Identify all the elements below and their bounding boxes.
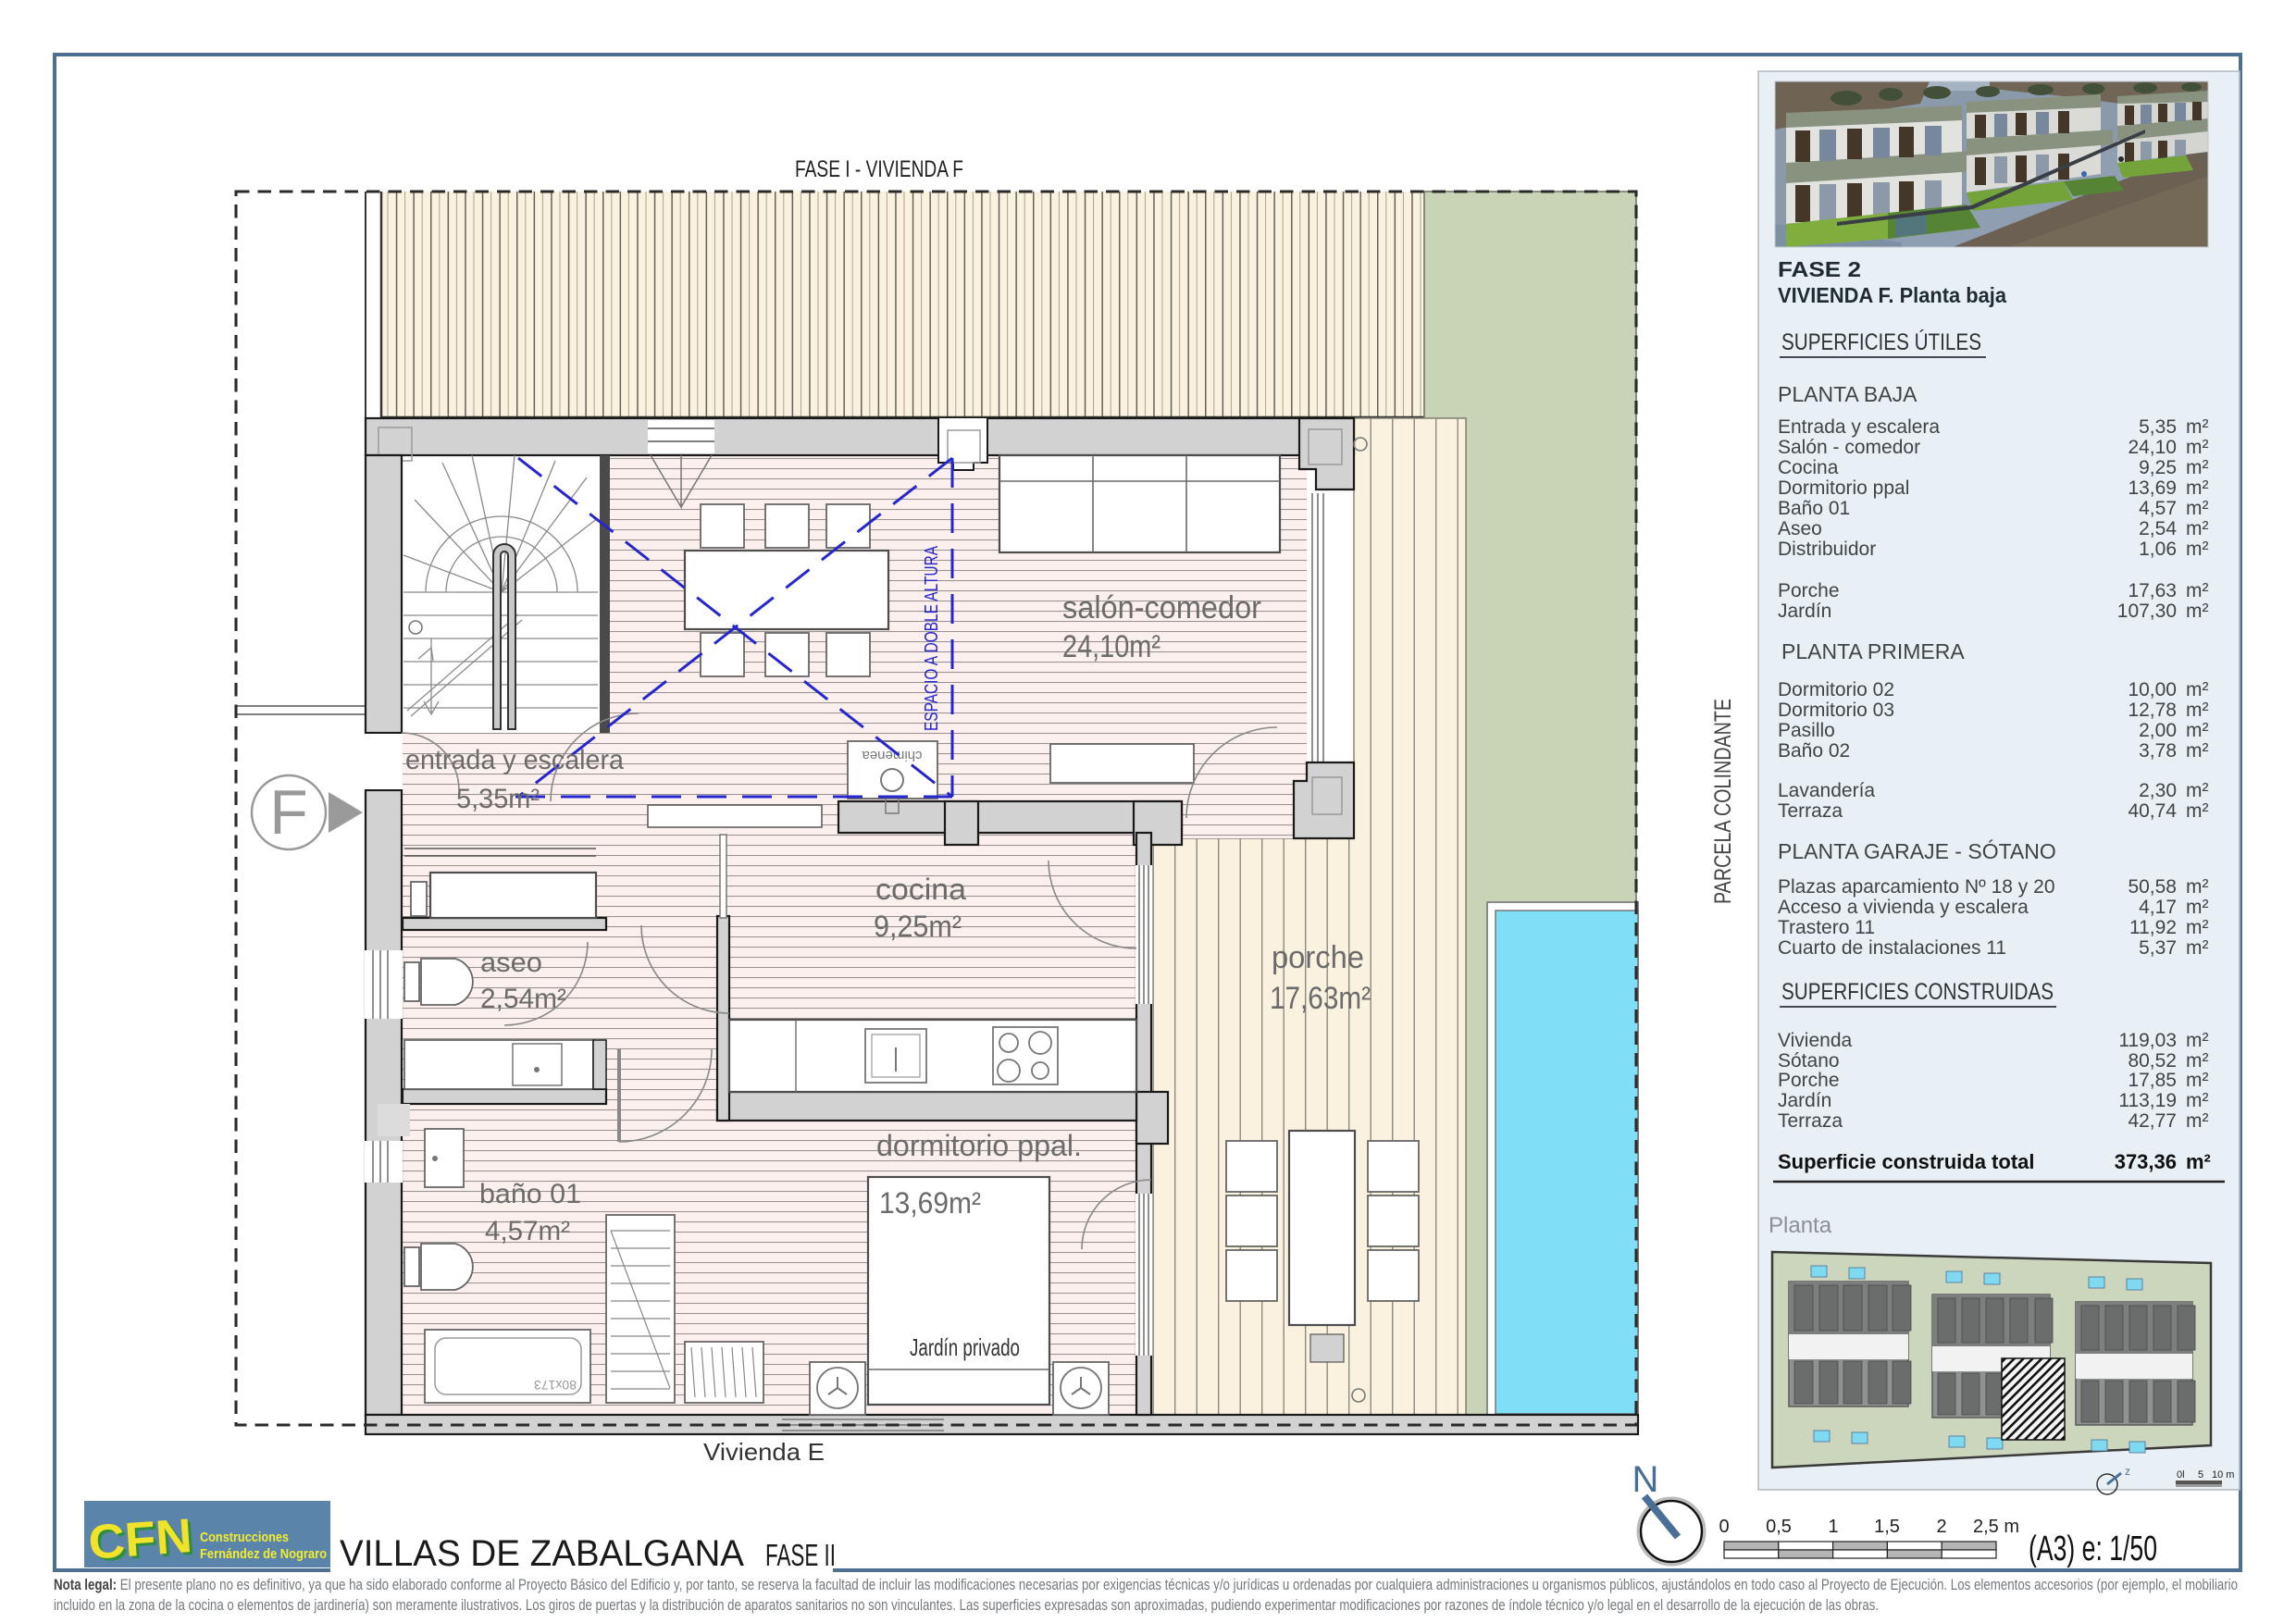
svg-text:1,5: 1,5 — [1874, 1517, 1900, 1537]
svg-text:40,74: 40,74 — [2128, 800, 2177, 822]
svg-text:2,5 m: 2,5 m — [1973, 1517, 2019, 1537]
svg-text:m²: m² — [2186, 917, 2209, 938]
svg-text:Plazas aparcamiento Nº 18 y 20: Plazas aparcamiento Nº 18 y 20 — [1778, 876, 2055, 898]
svg-text:9,25: 9,25 — [2139, 457, 2177, 478]
svg-text:0l: 0l — [2177, 1469, 2185, 1481]
svg-text:107,30: 107,30 — [2117, 601, 2177, 622]
svg-text:m²: m² — [2186, 580, 2209, 601]
svg-text:Cuarto de instalaciones 11: Cuarto de instalaciones 11 — [1778, 937, 2006, 959]
svg-text:12,78: 12,78 — [2128, 700, 2177, 721]
svg-text:9,25m²: 9,25m² — [874, 910, 962, 943]
svg-text:Construcciones: Construcciones — [200, 1530, 289, 1545]
svg-text:z: z — [2125, 1465, 2130, 1478]
svg-text:3,78: 3,78 — [2139, 740, 2177, 762]
svg-text:m²: m² — [2186, 1070, 2209, 1091]
svg-text:Terraza: Terraza — [1778, 800, 1843, 822]
svg-text:1: 1 — [1828, 1517, 1838, 1537]
svg-text:Dormitorio 02: Dormitorio 02 — [1778, 679, 1894, 700]
svg-text:Jardín privado: Jardín privado — [910, 1333, 1020, 1361]
svg-text:m²: m² — [2186, 897, 2209, 918]
svg-text:373,36: 373,36 — [2115, 1150, 2177, 1173]
svg-text:Dormitorio ppal: Dormitorio ppal — [1778, 477, 1909, 499]
svg-text:Porche: Porche — [1778, 1070, 1840, 1091]
svg-text:5,37: 5,37 — [2139, 937, 2177, 959]
svg-text:Dormitorio 03: Dormitorio 03 — [1778, 700, 1894, 721]
svg-text:Jardín: Jardín — [1778, 601, 1831, 622]
svg-text:80,52: 80,52 — [2128, 1050, 2177, 1072]
svg-text:24,10m²: 24,10m² — [1062, 629, 1160, 664]
svg-text:11,92: 11,92 — [2129, 917, 2177, 938]
svg-text:m²: m² — [2186, 539, 2209, 560]
svg-text:13,69m²: 13,69m² — [879, 1186, 981, 1220]
svg-text:m²: m² — [2186, 601, 2209, 622]
svg-text:Vivienda E: Vivienda E — [703, 1438, 825, 1466]
svg-text:F: F — [269, 777, 308, 848]
svg-text:Superficie construida total: Superficie construida total — [1778, 1150, 2035, 1173]
svg-text:Trastero 11: Trastero 11 — [1778, 917, 1875, 938]
svg-text:42,77: 42,77 — [2128, 1110, 2177, 1132]
svg-text:Vivienda: Vivienda — [1778, 1030, 1852, 1051]
svg-text:m²: m² — [2186, 416, 2209, 438]
svg-text:17,63: 17,63 — [2128, 580, 2177, 601]
svg-text:Sótano: Sótano — [1778, 1050, 1840, 1072]
svg-text:Pasillo: Pasillo — [1778, 720, 1835, 741]
svg-text:m²: m² — [2186, 518, 2209, 539]
svg-text:17,85: 17,85 — [2128, 1070, 2177, 1091]
svg-text:Planta: Planta — [1769, 1213, 1832, 1238]
svg-text:0: 0 — [1719, 1517, 1729, 1537]
svg-text:baño 01: baño 01 — [479, 1179, 581, 1209]
svg-text:Porche: Porche — [1778, 580, 1840, 601]
svg-text:2,54m²: 2,54m² — [480, 984, 566, 1014]
svg-text:m²: m² — [2186, 780, 2209, 801]
svg-text:4,17: 4,17 — [2139, 897, 2177, 918]
svg-text:m²: m² — [2186, 437, 2209, 458]
svg-text:SUPERFICIES ÚTILES: SUPERFICIES ÚTILES — [1781, 328, 1981, 355]
svg-text:N: N — [1632, 1459, 1659, 1500]
svg-text:m²: m² — [2186, 457, 2209, 478]
svg-text:salón-comedor: salón-comedor — [1062, 590, 1261, 626]
svg-text:17,63m²: 17,63m² — [1270, 981, 1371, 1016]
svg-text:Cocina: Cocina — [1778, 457, 1839, 478]
svg-text:PLANTA BAJA: PLANTA BAJA — [1778, 382, 1917, 406]
svg-text:m²: m² — [2186, 477, 2209, 499]
svg-text:2,30: 2,30 — [2139, 780, 2177, 801]
svg-text:5,35m²: 5,35m² — [456, 784, 540, 814]
svg-text:PLANTA PRIMERA: PLANTA PRIMERA — [1781, 639, 1965, 663]
svg-text:aseo: aseo — [480, 948, 542, 978]
svg-text:113,19: 113,19 — [2118, 1090, 2177, 1111]
svg-text:cocina: cocina — [875, 873, 966, 906]
svg-text:FASE II: FASE II — [765, 1538, 836, 1572]
svg-text:m²: m² — [2186, 876, 2209, 898]
svg-text:Salón - comedor: Salón - comedor — [1778, 437, 1920, 458]
svg-text:(A3) e: 1/50: (A3) e: 1/50 — [2029, 1530, 2157, 1568]
svg-text:m²: m² — [2186, 1110, 2209, 1132]
svg-text:1,06: 1,06 — [2139, 539, 2177, 560]
svg-text:2,00: 2,00 — [2139, 720, 2177, 741]
svg-text:incluido en la zona de la coci: incluido en la zona de la cocina o eleme… — [54, 1597, 1879, 1614]
svg-text:50,58: 50,58 — [2128, 876, 2177, 898]
svg-text:24,10: 24,10 — [2128, 437, 2177, 458]
svg-text:m²: m² — [2186, 720, 2209, 741]
svg-text:Baño 01: Baño 01 — [1778, 498, 1850, 519]
svg-text:Nota legal: El presente plano: Nota legal: El presente plano no es defi… — [54, 1577, 2238, 1593]
svg-text:Jardín: Jardín — [1778, 1090, 1831, 1111]
svg-text:SUPERFICIES CONSTRUIDAS: SUPERFICIES CONSTRUIDAS — [1781, 979, 2054, 1005]
svg-text:2: 2 — [1936, 1517, 1946, 1537]
svg-text:10,00: 10,00 — [2128, 679, 2177, 700]
svg-text:5,35: 5,35 — [2139, 416, 2177, 438]
svg-text:m²: m² — [2186, 498, 2209, 519]
svg-text:m²: m² — [2186, 1150, 2211, 1173]
svg-text:FASE 2: FASE 2 — [1778, 257, 1861, 281]
svg-text:Terraza: Terraza — [1778, 1110, 1843, 1132]
svg-text:ESPACIO A DOBLE ALTURA: ESPACIO A DOBLE ALTURA — [922, 545, 942, 731]
svg-text:m²: m² — [2186, 1030, 2209, 1051]
svg-text:VILLAS DE ZABALGANA: VILLAS DE ZABALGANA — [340, 1533, 744, 1574]
svg-text:119,03: 119,03 — [2118, 1030, 2177, 1051]
svg-text:PLANTA GARAJE - SÓTANO: PLANTA GARAJE - SÓTANO — [1778, 839, 2056, 863]
svg-text:Entrada y escalera: Entrada y escalera — [1778, 416, 1940, 438]
svg-text:80x173: 80x173 — [534, 1378, 577, 1393]
svg-text:Baño 02: Baño 02 — [1778, 740, 1850, 762]
svg-text:4,57: 4,57 — [2139, 498, 2177, 519]
svg-text:m²: m² — [2186, 740, 2209, 762]
svg-text:Acceso a vivienda y escalera: Acceso a vivienda y escalera — [1778, 897, 2029, 918]
svg-text:m²: m² — [2186, 937, 2209, 959]
svg-text:Aseo: Aseo — [1778, 518, 1822, 539]
svg-text:FASE I - VIVIENDA F: FASE I - VIVIENDA F — [795, 156, 963, 182]
svg-text:m²: m² — [2186, 679, 2209, 700]
svg-text:10 m: 10 m — [2212, 1469, 2234, 1481]
svg-text:PARCELA COLINDANTE: PARCELA COLINDANTE — [1710, 699, 1736, 904]
svg-text:m²: m² — [2186, 800, 2209, 822]
svg-text:porche: porche — [1272, 940, 1364, 975]
svg-text:13,69: 13,69 — [2128, 477, 2177, 499]
svg-text:Lavandería: Lavandería — [1778, 780, 1875, 801]
svg-text:m²: m² — [2186, 1050, 2209, 1072]
svg-text:Distribuidor: Distribuidor — [1778, 539, 1876, 560]
svg-text:4,57m²: 4,57m² — [485, 1216, 570, 1246]
svg-text:CFN: CFN — [87, 1509, 194, 1570]
svg-text:m²: m² — [2186, 1090, 2209, 1111]
svg-text:0,5: 0,5 — [1766, 1517, 1792, 1537]
svg-text:5: 5 — [2198, 1469, 2203, 1481]
svg-text:2,54: 2,54 — [2139, 518, 2177, 539]
svg-text:m²: m² — [2186, 700, 2209, 721]
svg-text:VIVIENDA F. Planta baja: VIVIENDA F. Planta baja — [1778, 283, 2006, 307]
svg-text:Fernández de Nograro: Fernández de Nograro — [200, 1546, 327, 1562]
svg-text:dormitorio ppal.: dormitorio ppal. — [876, 1129, 1082, 1162]
svg-text:entrada y escalera: entrada y escalera — [405, 745, 624, 775]
